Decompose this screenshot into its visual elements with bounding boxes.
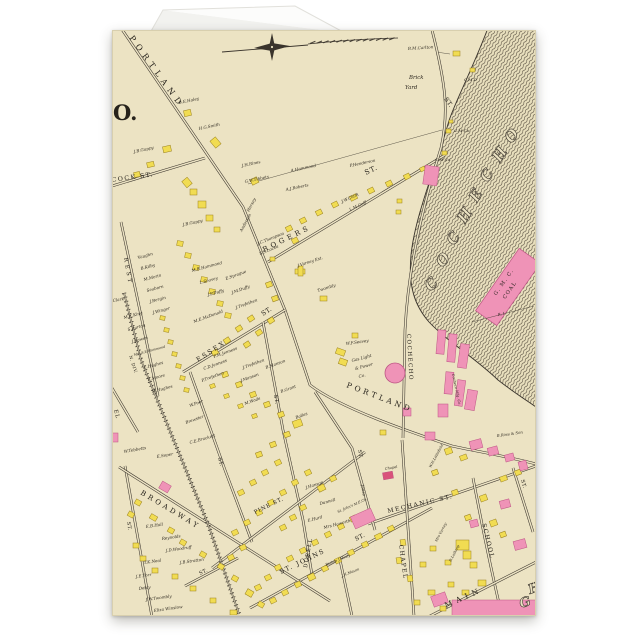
- owner-name-label: C.M.D: [464, 77, 478, 82]
- building: [172, 352, 178, 357]
- building: [397, 199, 402, 203]
- building: [217, 301, 224, 307]
- building: [423, 165, 440, 186]
- building: [420, 562, 426, 567]
- building: [446, 129, 451, 133]
- building: [382, 471, 393, 480]
- building: [180, 376, 186, 381]
- building: [183, 109, 191, 116]
- plate-letter: O.: [113, 100, 137, 125]
- page-background: Gas Light& PowerCo.PORTLANDCOCK ST.RESTR…: [0, 0, 644, 644]
- greeting-card-front: Gas Light& PowerCo.PORTLANDCOCK ST.RESTR…: [112, 30, 536, 616]
- building: [470, 68, 475, 72]
- building: [160, 316, 166, 321]
- building: [425, 432, 435, 440]
- building: [270, 257, 275, 261]
- building: [470, 562, 477, 568]
- building: [133, 543, 139, 548]
- building: [225, 313, 232, 319]
- owner-name-label: Brick: [408, 75, 424, 81]
- building: [438, 404, 448, 417]
- building: [172, 574, 178, 579]
- building: [190, 189, 197, 195]
- owner-name-label: C.M.Co.: [454, 128, 471, 133]
- building: [164, 328, 170, 333]
- building: [463, 551, 471, 559]
- building: [177, 241, 184, 247]
- building: [380, 430, 386, 435]
- building: [185, 253, 192, 259]
- building: [176, 364, 182, 369]
- building: [453, 51, 460, 56]
- atlas-map: Gas Light& PowerCo.PORTLANDCOCK ST.RESTR…: [112, 30, 536, 616]
- building: [184, 388, 190, 393]
- building: [147, 161, 155, 167]
- buildings-church: [382, 471, 393, 480]
- owner-name-label: Yard: [405, 85, 418, 91]
- building: [414, 600, 420, 605]
- building: [230, 610, 237, 615]
- gas-holder: [385, 363, 405, 383]
- building: [152, 568, 158, 573]
- building: [428, 590, 435, 595]
- building: [352, 333, 358, 338]
- owner-name-label: C.M.Co.: [435, 157, 452, 162]
- building: [448, 582, 454, 587]
- building: [396, 210, 401, 214]
- building: [320, 296, 327, 301]
- building: [214, 227, 220, 232]
- building: [210, 598, 216, 603]
- building: [449, 120, 453, 123]
- building: [190, 586, 196, 591]
- building: [442, 151, 447, 155]
- building: [430, 546, 436, 551]
- building: [206, 215, 213, 221]
- building: [168, 340, 174, 345]
- building: [198, 201, 206, 208]
- building: [162, 145, 171, 153]
